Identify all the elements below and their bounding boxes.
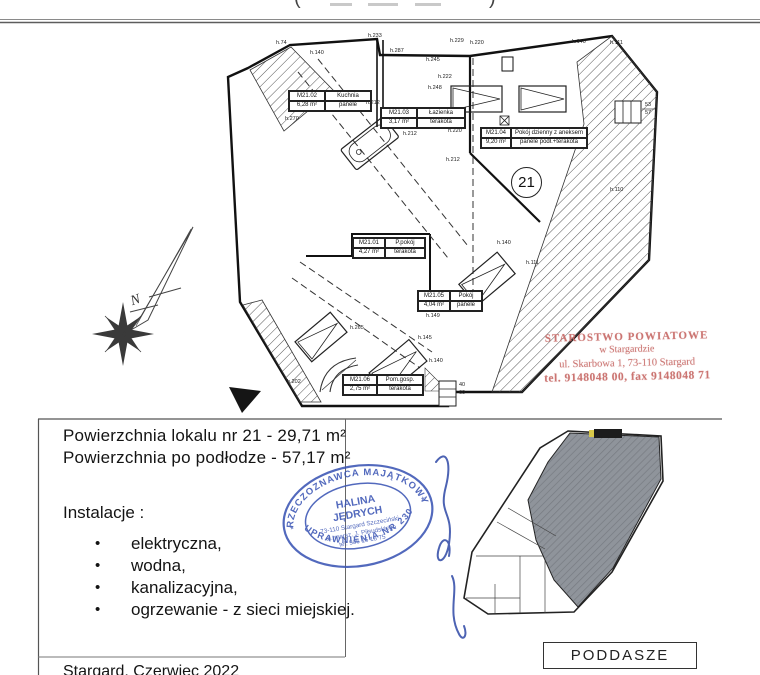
dim-label: h.212 xyxy=(366,100,380,106)
window-symbol-bottom xyxy=(439,381,456,406)
room-area: 6,28 m² xyxy=(289,101,325,111)
room-name: Pom.gosp. xyxy=(377,375,423,385)
room-area: 3,17 m² xyxy=(381,118,417,128)
dim-label: h.287 xyxy=(390,48,404,54)
room-floor: panele xyxy=(325,101,371,111)
room-name: Kuchnia xyxy=(325,91,371,101)
room-name: Łazienka xyxy=(417,108,465,118)
installations-title: Instalacje : xyxy=(63,503,144,523)
window-size-label: 57 xyxy=(645,110,651,116)
room-id: M21.04 xyxy=(481,128,511,138)
entrance-arrow-icon xyxy=(229,387,261,413)
dim-label: h.222 xyxy=(438,74,452,80)
bullet-icon: • xyxy=(95,600,131,620)
bullet-icon: • xyxy=(95,578,131,598)
dim-label: h.149 xyxy=(426,313,440,319)
window-size-label: 53 xyxy=(645,102,651,108)
dim-label: h.74 xyxy=(276,40,287,46)
list-item-label: ogrzewanie - z sieci miejskiej. xyxy=(131,600,355,620)
room-table-m21-06: M21.06Pom.gosp. 2,75 m²terakota xyxy=(342,374,424,396)
dim-label: h.111 xyxy=(610,40,623,46)
dim-label: h.270 xyxy=(285,116,299,122)
miniplan-tag xyxy=(594,429,622,438)
dim-label: h.202 xyxy=(287,379,301,385)
bullet-icon: • xyxy=(95,534,131,554)
list-item-label: wodna, xyxy=(131,556,186,576)
room-floor: terakota xyxy=(417,118,465,128)
dim-label: h.145 xyxy=(418,335,432,341)
room-table-m21-05: M21.05Pokój 4,04 m²panele xyxy=(417,290,483,312)
dim-label: h.212 xyxy=(403,131,417,137)
footer-date-line: Stargard, Czerwiec 2022 xyxy=(63,663,239,675)
red-office-stamp: STAROSTWO POWIATOWE w Stargardzie ul. Sk… xyxy=(533,329,720,385)
room-table-m21-03: M21.03Łazienka 3,17 m²terakota xyxy=(380,107,466,129)
dim-label: h.220 xyxy=(470,40,484,46)
room-id: M21.05 xyxy=(418,291,450,301)
room-name: Pokój xyxy=(450,291,482,301)
installations-list: • elektryczna, • wodna, • kanalizacyjna,… xyxy=(95,534,355,622)
room-area: 4,04 m² xyxy=(418,301,450,311)
list-item: • elektryczna, xyxy=(95,534,355,556)
room-name: Pokój dzienny z aneksem xyxy=(511,128,587,138)
room-id: M21.02 xyxy=(289,91,325,101)
list-item: • kanalizacyjna, xyxy=(95,578,355,600)
dim-label: h.140 xyxy=(572,39,586,45)
miniplan-caption: PODDASZE xyxy=(543,642,697,669)
room-floor: panele xyxy=(450,301,482,311)
list-item-label: elektryczna, xyxy=(131,534,222,554)
room-table-m21-02: M21.02Kuchnia 6,28 m²panele xyxy=(288,90,372,112)
unit-number-badge: 21 xyxy=(511,167,542,198)
window-size-label: 60 xyxy=(459,390,465,396)
window-size-label: 40 xyxy=(459,382,465,388)
area-total-line: Powierzchnia lokalu nr 21 - 29,71 m² xyxy=(63,426,346,446)
document-page: ( ) xyxy=(0,0,760,675)
list-item: • wodna, xyxy=(95,556,355,578)
dim-label: h.140 xyxy=(497,240,511,246)
compass-icon xyxy=(89,227,193,368)
dim-label: h.245 xyxy=(426,57,440,63)
room-floor: terakota xyxy=(385,248,425,258)
dim-label: h.140 xyxy=(310,50,324,56)
room-area: 9,20 m² xyxy=(481,138,511,148)
room-area: 2,75 m² xyxy=(343,385,377,395)
list-item: • ogrzewanie - z sieci miejskiej. xyxy=(95,600,355,622)
room-floor: panele podł.+terakota xyxy=(511,138,587,148)
room-area: 4,27 m² xyxy=(353,248,385,258)
room-id: M21.06 xyxy=(343,375,377,385)
miniplan-tag-mark xyxy=(589,430,594,437)
room-id: M21.03 xyxy=(381,108,417,118)
dim-label: h.110 xyxy=(610,187,623,193)
dim-label: h.212 xyxy=(446,157,460,163)
dim-label: h.220 xyxy=(448,128,462,134)
list-item-label: kanalizacyjna, xyxy=(131,578,238,598)
area-floor-line: Powierzchnia po podłodze - 57,17 m² xyxy=(63,448,351,468)
mini-floorplan xyxy=(464,429,663,614)
dim-label: h.265 xyxy=(350,325,364,331)
room-table-m21-01: M21.01P.pokój 4,27 m²terakota xyxy=(352,237,426,259)
dim-label: h.111 xyxy=(526,260,539,266)
bullet-icon: • xyxy=(95,556,131,576)
room-floor: terakota xyxy=(377,385,423,395)
dim-label: h.233 xyxy=(368,33,382,39)
room-id: M21.01 xyxy=(353,238,385,248)
dim-label: h.248 xyxy=(428,85,442,91)
dim-label: h.140 xyxy=(429,358,443,364)
room-name: P.pokój xyxy=(385,238,425,248)
dim-label: h.229 xyxy=(450,38,464,44)
room-table-m21-04: M21.04Pokój dzienny z aneksem 9,20 m²pan… xyxy=(480,127,588,149)
signature-stroke xyxy=(436,456,465,637)
